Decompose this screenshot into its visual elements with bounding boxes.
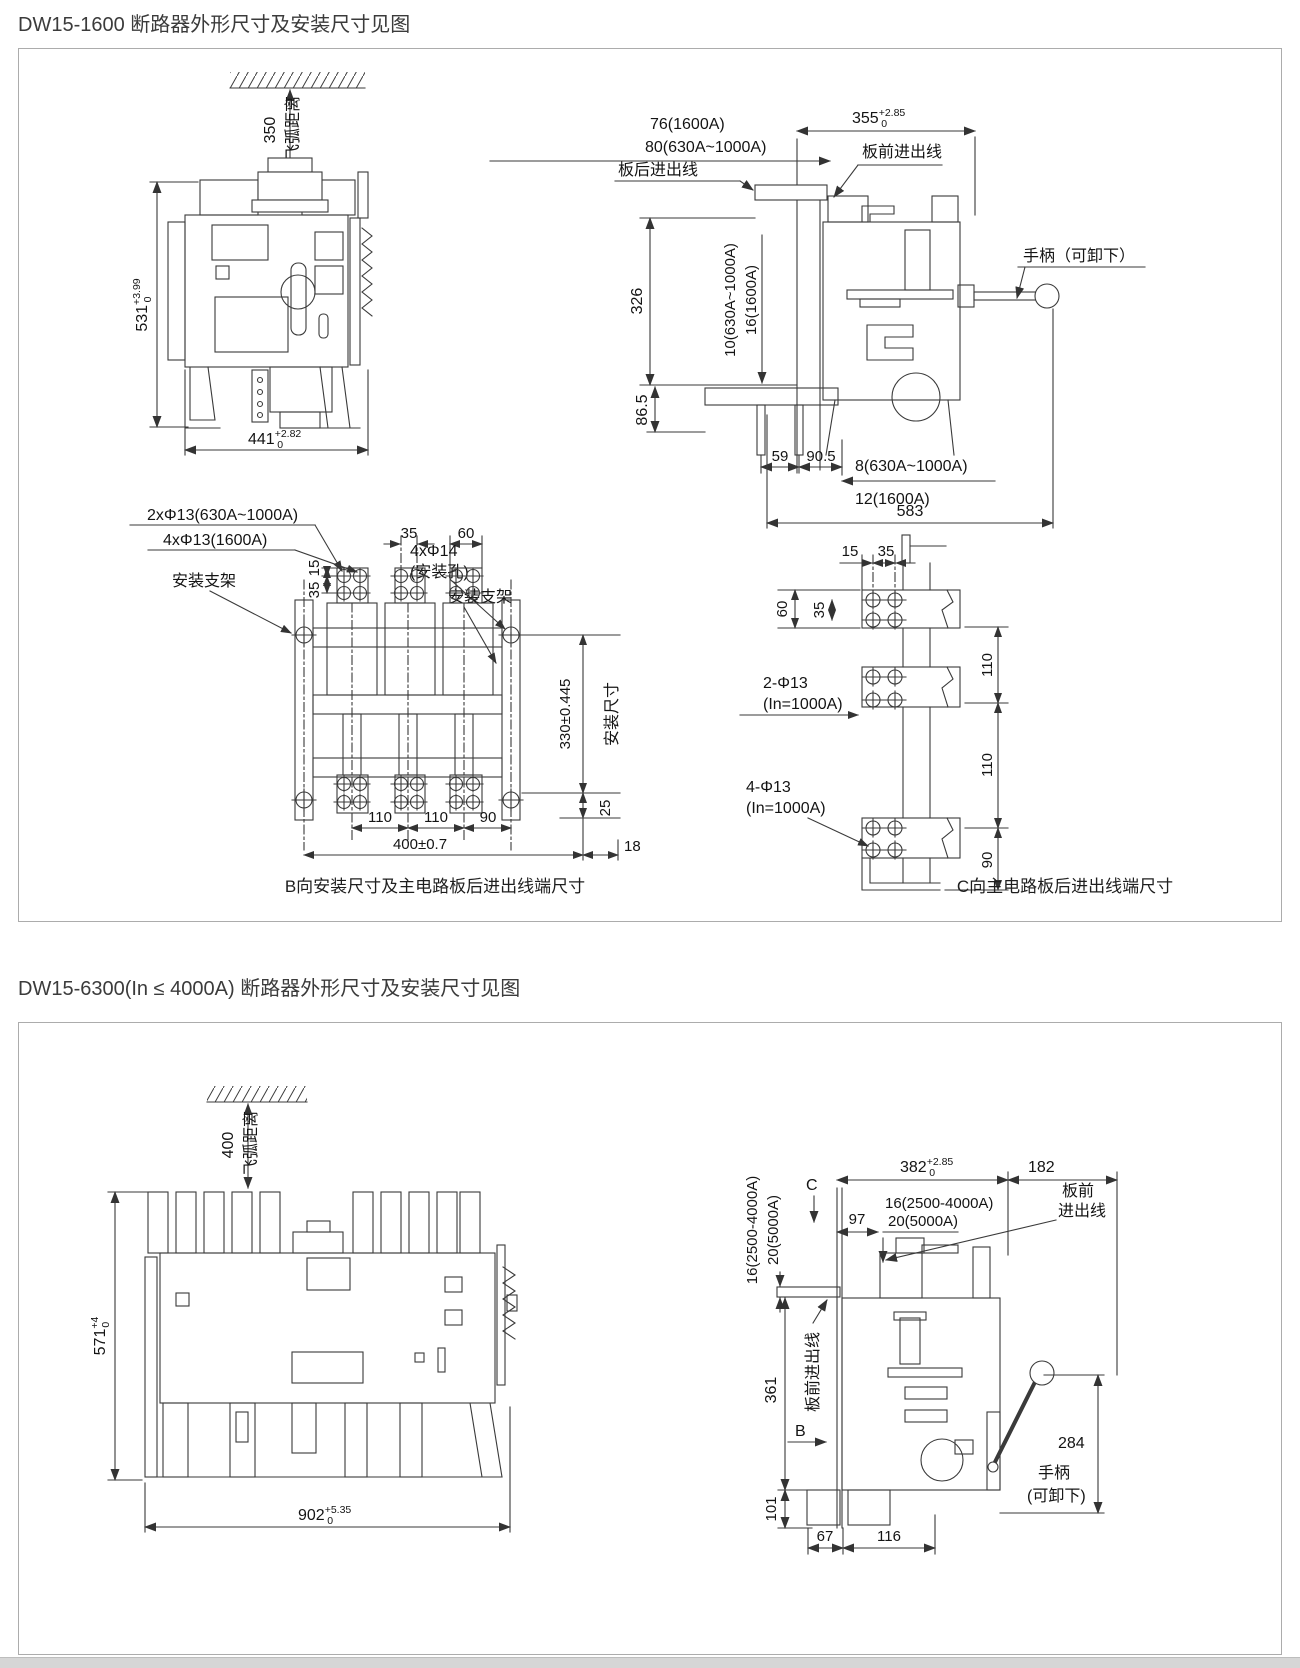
- dw15-1600-side-view-drawing: 350 飞弧距离 531+3.990 441+2.820: [120, 60, 480, 470]
- svg-text:531+3.990: 531+3.990: [131, 278, 154, 331]
- hole-4-13-label: 4-Φ13: [746, 779, 791, 796]
- breaker-outline: [168, 158, 372, 428]
- dw15-6300-side-view-drawing: 400 飞弧距离 571+40 902+5.350: [70, 1040, 720, 1630]
- dim-86_5: 86.5: [634, 387, 705, 432]
- hole-2-13-label: 2-Φ13: [763, 675, 808, 692]
- rear-wiring-leader: [615, 181, 753, 190]
- hole-4x13-leader: [148, 550, 357, 572]
- breaker-outline: [145, 1192, 517, 1477]
- view-c-label: C: [806, 1177, 818, 1194]
- dim-15-35-top: 15 35: [840, 543, 915, 595]
- view-b-label: B: [795, 1423, 806, 1440]
- bottom-dims: 59 90.5 8(630A~1000A) 12(1600A) 583: [761, 309, 1053, 528]
- svg-text:97: 97: [849, 1211, 866, 1228]
- hole-2x13-label: 2xΦ13(630A~1000A): [147, 507, 298, 524]
- svg-text:67: 67: [817, 1528, 834, 1545]
- svg-text:361: 361: [763, 1377, 780, 1404]
- mounting-plane: [837, 1188, 842, 1528]
- rear-wiring-label: 板后进出线: [618, 161, 698, 179]
- svg-text:441+2.820: 441+2.820: [248, 428, 301, 451]
- dim-326: 326: [629, 218, 797, 385]
- svg-text:110: 110: [424, 809, 448, 826]
- rear-bus-plate: [777, 1287, 840, 1297]
- dim-20-label: 20(5000A): [888, 1213, 958, 1230]
- svg-text:182: 182: [1028, 1159, 1055, 1176]
- arc-distance-value: 350: [262, 117, 279, 144]
- height-dimension: 571+40: [89, 1192, 150, 1480]
- left-dim-16-label: 16(2500-4000A): [744, 1176, 761, 1284]
- left-dim-20-label: 20(5000A): [765, 1195, 782, 1265]
- handle-label2: (可卸下): [1027, 1487, 1086, 1505]
- front-wiring-left-leader: [813, 1300, 827, 1323]
- ceiling-hatch: [230, 72, 365, 88]
- dim-60-35-left: 60 35: [774, 590, 860, 628]
- front-wiring-right-label2: 进出线: [1058, 1202, 1106, 1220]
- dim-330-right: 330±0.445 安装尺寸 25: [522, 635, 621, 818]
- handle-label: 手柄: [1038, 1464, 1070, 1482]
- svg-text:284: 284: [1058, 1435, 1085, 1452]
- hole-4-13-leader: [808, 818, 868, 846]
- dim-16-label: 16(1600A): [743, 265, 760, 335]
- front-wiring-leader: [834, 165, 942, 197]
- svg-text:60: 60: [458, 525, 475, 542]
- svg-text:326: 326: [629, 288, 646, 315]
- arc-distance-value: 400: [220, 1132, 237, 1159]
- arc-distance-label: 飞弧距离: [242, 1111, 260, 1175]
- dim-16-label: 16(2500-4000A): [885, 1195, 993, 1212]
- bracket-left-label: 安装支架: [172, 572, 236, 590]
- b-view-caption: B向安装尺寸及主电路板后进出线端尺寸: [285, 872, 585, 897]
- svg-text:90: 90: [480, 809, 497, 826]
- bracket-right-leader: [464, 607, 496, 663]
- page-footer-strip: [0, 1657, 1300, 1668]
- svg-text:35: 35: [811, 602, 828, 619]
- svg-text:355+2.850: 355+2.850: [852, 107, 905, 130]
- svg-text:15: 15: [842, 543, 859, 560]
- section1-title: DW15-1600 断路器外形尺寸及安装尺寸见图: [18, 8, 410, 37]
- section2-title: DW15-6300(In ≤ 4000A) 断路器外形尺寸及安装尺寸见图: [18, 972, 520, 1001]
- svg-text:86.5: 86.5: [634, 394, 651, 425]
- handle-pivot: [988, 1462, 998, 1472]
- dw15-6300-handle-side-view-drawing: 382+2.850 182 C 16(2500-4000A) 20(5000A)…: [700, 1090, 1300, 1660]
- svg-text:902+5.350: 902+5.350: [298, 1504, 351, 1527]
- svg-text:400±0.7: 400±0.7: [393, 836, 447, 853]
- svg-text:101: 101: [763, 1496, 780, 1521]
- width-dimension: 902+5.350: [145, 1407, 510, 1532]
- hole-4-13-label2: (In=1000A): [746, 800, 826, 817]
- hole-2-13-label2: (In=1000A): [763, 696, 843, 713]
- depth-76-label: 76(1600A): [650, 116, 725, 133]
- svg-text:安装尺寸: 安装尺寸: [603, 682, 621, 746]
- svg-text:60: 60: [774, 601, 791, 618]
- svg-text:382+2.850: 382+2.850: [900, 1156, 953, 1179]
- dw15-1600-handle-side-view-drawing: 355+2.850 76(1600A) 80(630A~1000A) 板前进出线…: [490, 95, 1260, 535]
- svg-text:571+40: 571+40: [89, 1317, 112, 1356]
- svg-text:35: 35: [878, 543, 895, 560]
- breaker-outline: [807, 1238, 1000, 1525]
- depth-80-label: 80(630A~1000A): [645, 139, 766, 156]
- svg-text:35: 35: [306, 582, 323, 599]
- dim-10-label: 10(630A~1000A): [722, 243, 739, 357]
- front-wiring-left-label: 板前进出线: [804, 1332, 822, 1412]
- svg-text:18: 18: [624, 838, 641, 855]
- svg-text:110: 110: [979, 653, 996, 677]
- svg-text:15: 15: [306, 560, 323, 577]
- pole-assemblies: [313, 568, 502, 840]
- b-view-mounting-drawing: 2xΦ13(630A~1000A) 4xΦ13(1600A) 35 60 15 …: [60, 480, 690, 910]
- handle-knob: [1030, 1361, 1054, 1385]
- svg-text:25: 25: [597, 800, 614, 817]
- svg-text:90.5: 90.5: [806, 448, 835, 465]
- front-wiring-label: 板前进出线: [862, 143, 942, 161]
- svg-text:110: 110: [368, 809, 392, 826]
- bottom-dims: 110 110 90 400±0.7 18: [304, 809, 641, 860]
- svg-text:110: 110: [979, 753, 996, 777]
- dim-97: 97: [837, 1211, 878, 1232]
- mounting-hole-label2: (安装孔): [410, 563, 469, 581]
- svg-text:35: 35: [401, 525, 418, 542]
- svg-text:8(630A~1000A): 8(630A~1000A): [855, 458, 968, 475]
- handle-label: 手柄（可卸下）: [1023, 247, 1135, 265]
- c-view-terminal-drawing: 15 35 60 35 2-Φ13 (In=1000A) 4-Φ13 (In=1…: [700, 500, 1160, 920]
- busbar-assembly: [862, 535, 960, 890]
- c-view-caption: C向主电路板后进出线端尺寸: [957, 872, 1173, 897]
- height-dimension: 531+3.990: [131, 182, 198, 427]
- hole-4x13-label: 4xΦ13(1600A): [163, 532, 267, 549]
- front-wiring-right-label: 板前: [1062, 1182, 1094, 1200]
- ceiling-hatch: [207, 1086, 307, 1102]
- mounting-hole-label: 4xΦ14: [410, 543, 458, 560]
- bottom-dims: 67 116: [808, 1515, 935, 1554]
- svg-text:116: 116: [877, 1528, 901, 1545]
- svg-text:59: 59: [772, 448, 789, 465]
- svg-text:330±0.445: 330±0.445: [557, 679, 574, 750]
- svg-text:90: 90: [979, 852, 996, 869]
- bracket-left-leader: [210, 591, 291, 633]
- arc-distance-label: 飞弧距离: [284, 96, 302, 160]
